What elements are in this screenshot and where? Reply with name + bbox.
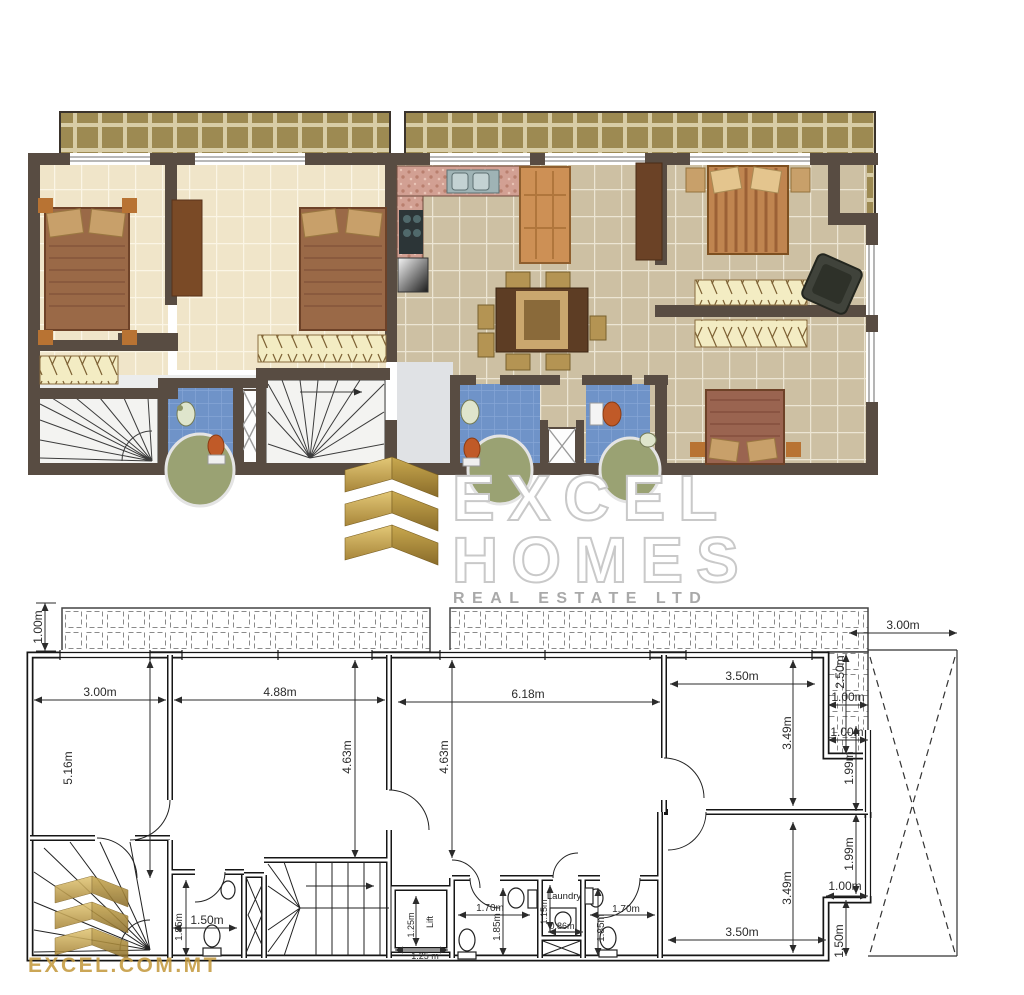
wardrobe-strip-4: [695, 320, 807, 347]
cad-laundry-shaft: [543, 941, 580, 955]
dim-label: 1.85m: [174, 913, 185, 941]
dim-label: 3.49m: [780, 871, 794, 904]
excel-homes-logo: EXCEL HOMES REAL ESTATE LTD: [345, 457, 752, 607]
dim-label: 1.99m: [842, 751, 856, 784]
dim-label: 4.63m: [437, 740, 451, 773]
cad-doors: [97, 758, 706, 918]
dim-label: 5.16m: [61, 751, 75, 784]
dim-label: 4.63m: [340, 740, 354, 773]
dim-label: 2.50m: [833, 655, 847, 688]
dim-label: 3.00m: [83, 685, 116, 699]
watermark-logo-mark: [55, 876, 128, 959]
dim-label: 1.00m: [830, 725, 863, 739]
wardrobe-strip-2: [258, 335, 386, 362]
cad-dimension-labels: 1.00m 3.00m 4.88m 6.18m 3.50m 2.50m 1.00…: [31, 610, 920, 961]
dim-label: 1.50m: [190, 913, 223, 927]
bed-4: [690, 390, 801, 464]
dim-label: 0.86m: [549, 921, 574, 931]
dim-label: 1.99m: [842, 837, 856, 870]
upper-floor-rendered-plan: [28, 112, 878, 506]
room-label-laundry: Laundry: [547, 891, 582, 902]
logo-tagline: REAL ESTATE LTD: [453, 590, 708, 607]
staircase-1: [38, 398, 158, 464]
dim-label: 3.00m: [886, 618, 919, 632]
staircase-2: [266, 380, 385, 464]
fridge: [398, 258, 428, 292]
cad-shaft-1: [246, 877, 262, 953]
dim-label: 3.50m: [725, 669, 758, 683]
sofa: [520, 167, 570, 263]
tv-unit: [636, 163, 662, 260]
dim-label: 1.00m: [828, 879, 861, 893]
shaft-right: [548, 428, 576, 464]
bed-2: [300, 208, 386, 330]
dim-label: 1.70m: [612, 904, 640, 915]
dim-label: 1.25m: [406, 912, 416, 937]
dim-label: 1.25 m: [411, 951, 439, 961]
backyard-shaft: [868, 650, 957, 956]
dim-label: 3.50m: [725, 925, 758, 939]
floorplan-graphics: EXCEL HOMES REAL ESTATE LTD: [0, 0, 1024, 995]
cad-main-stair: [268, 862, 389, 956]
watermark-site-text: EXCEL.COM.MT: [28, 954, 219, 977]
bed-1: [38, 198, 137, 345]
dim-label: 1.85m: [596, 914, 607, 942]
dim-label: 1.00m: [831, 690, 864, 704]
dim-label: 3.49m: [780, 716, 794, 749]
right-hall-floor: [397, 362, 453, 463]
wardrobe-strip-3: [695, 280, 807, 305]
floorplan-sheet: EXCEL HOMES REAL ESTATE LTD: [0, 0, 1024, 995]
logo-word-homes: HOMES: [452, 524, 752, 596]
cad-windows: [60, 650, 873, 896]
dim-label: 1.15m: [539, 899, 549, 924]
dim-label: 1.85m: [492, 913, 503, 941]
logo-mark: [345, 457, 438, 565]
lower-floor-cad-plan: 1.00m 3.00m 4.88m 6.18m 3.50m 2.50m 1.00…: [30, 603, 957, 961]
shaft-left: [243, 390, 258, 463]
dim-label: 6.18m: [511, 687, 544, 701]
wardrobe-tall: [172, 200, 202, 296]
room-label-lift: Lift: [425, 916, 435, 929]
dim-label: 1.00m: [31, 610, 45, 643]
dim-label: 4.88m: [263, 685, 296, 699]
dim-label: 1.70m: [476, 903, 504, 914]
dim-label: 1.50m: [832, 924, 846, 957]
wardrobe-strip-1: [40, 356, 118, 384]
